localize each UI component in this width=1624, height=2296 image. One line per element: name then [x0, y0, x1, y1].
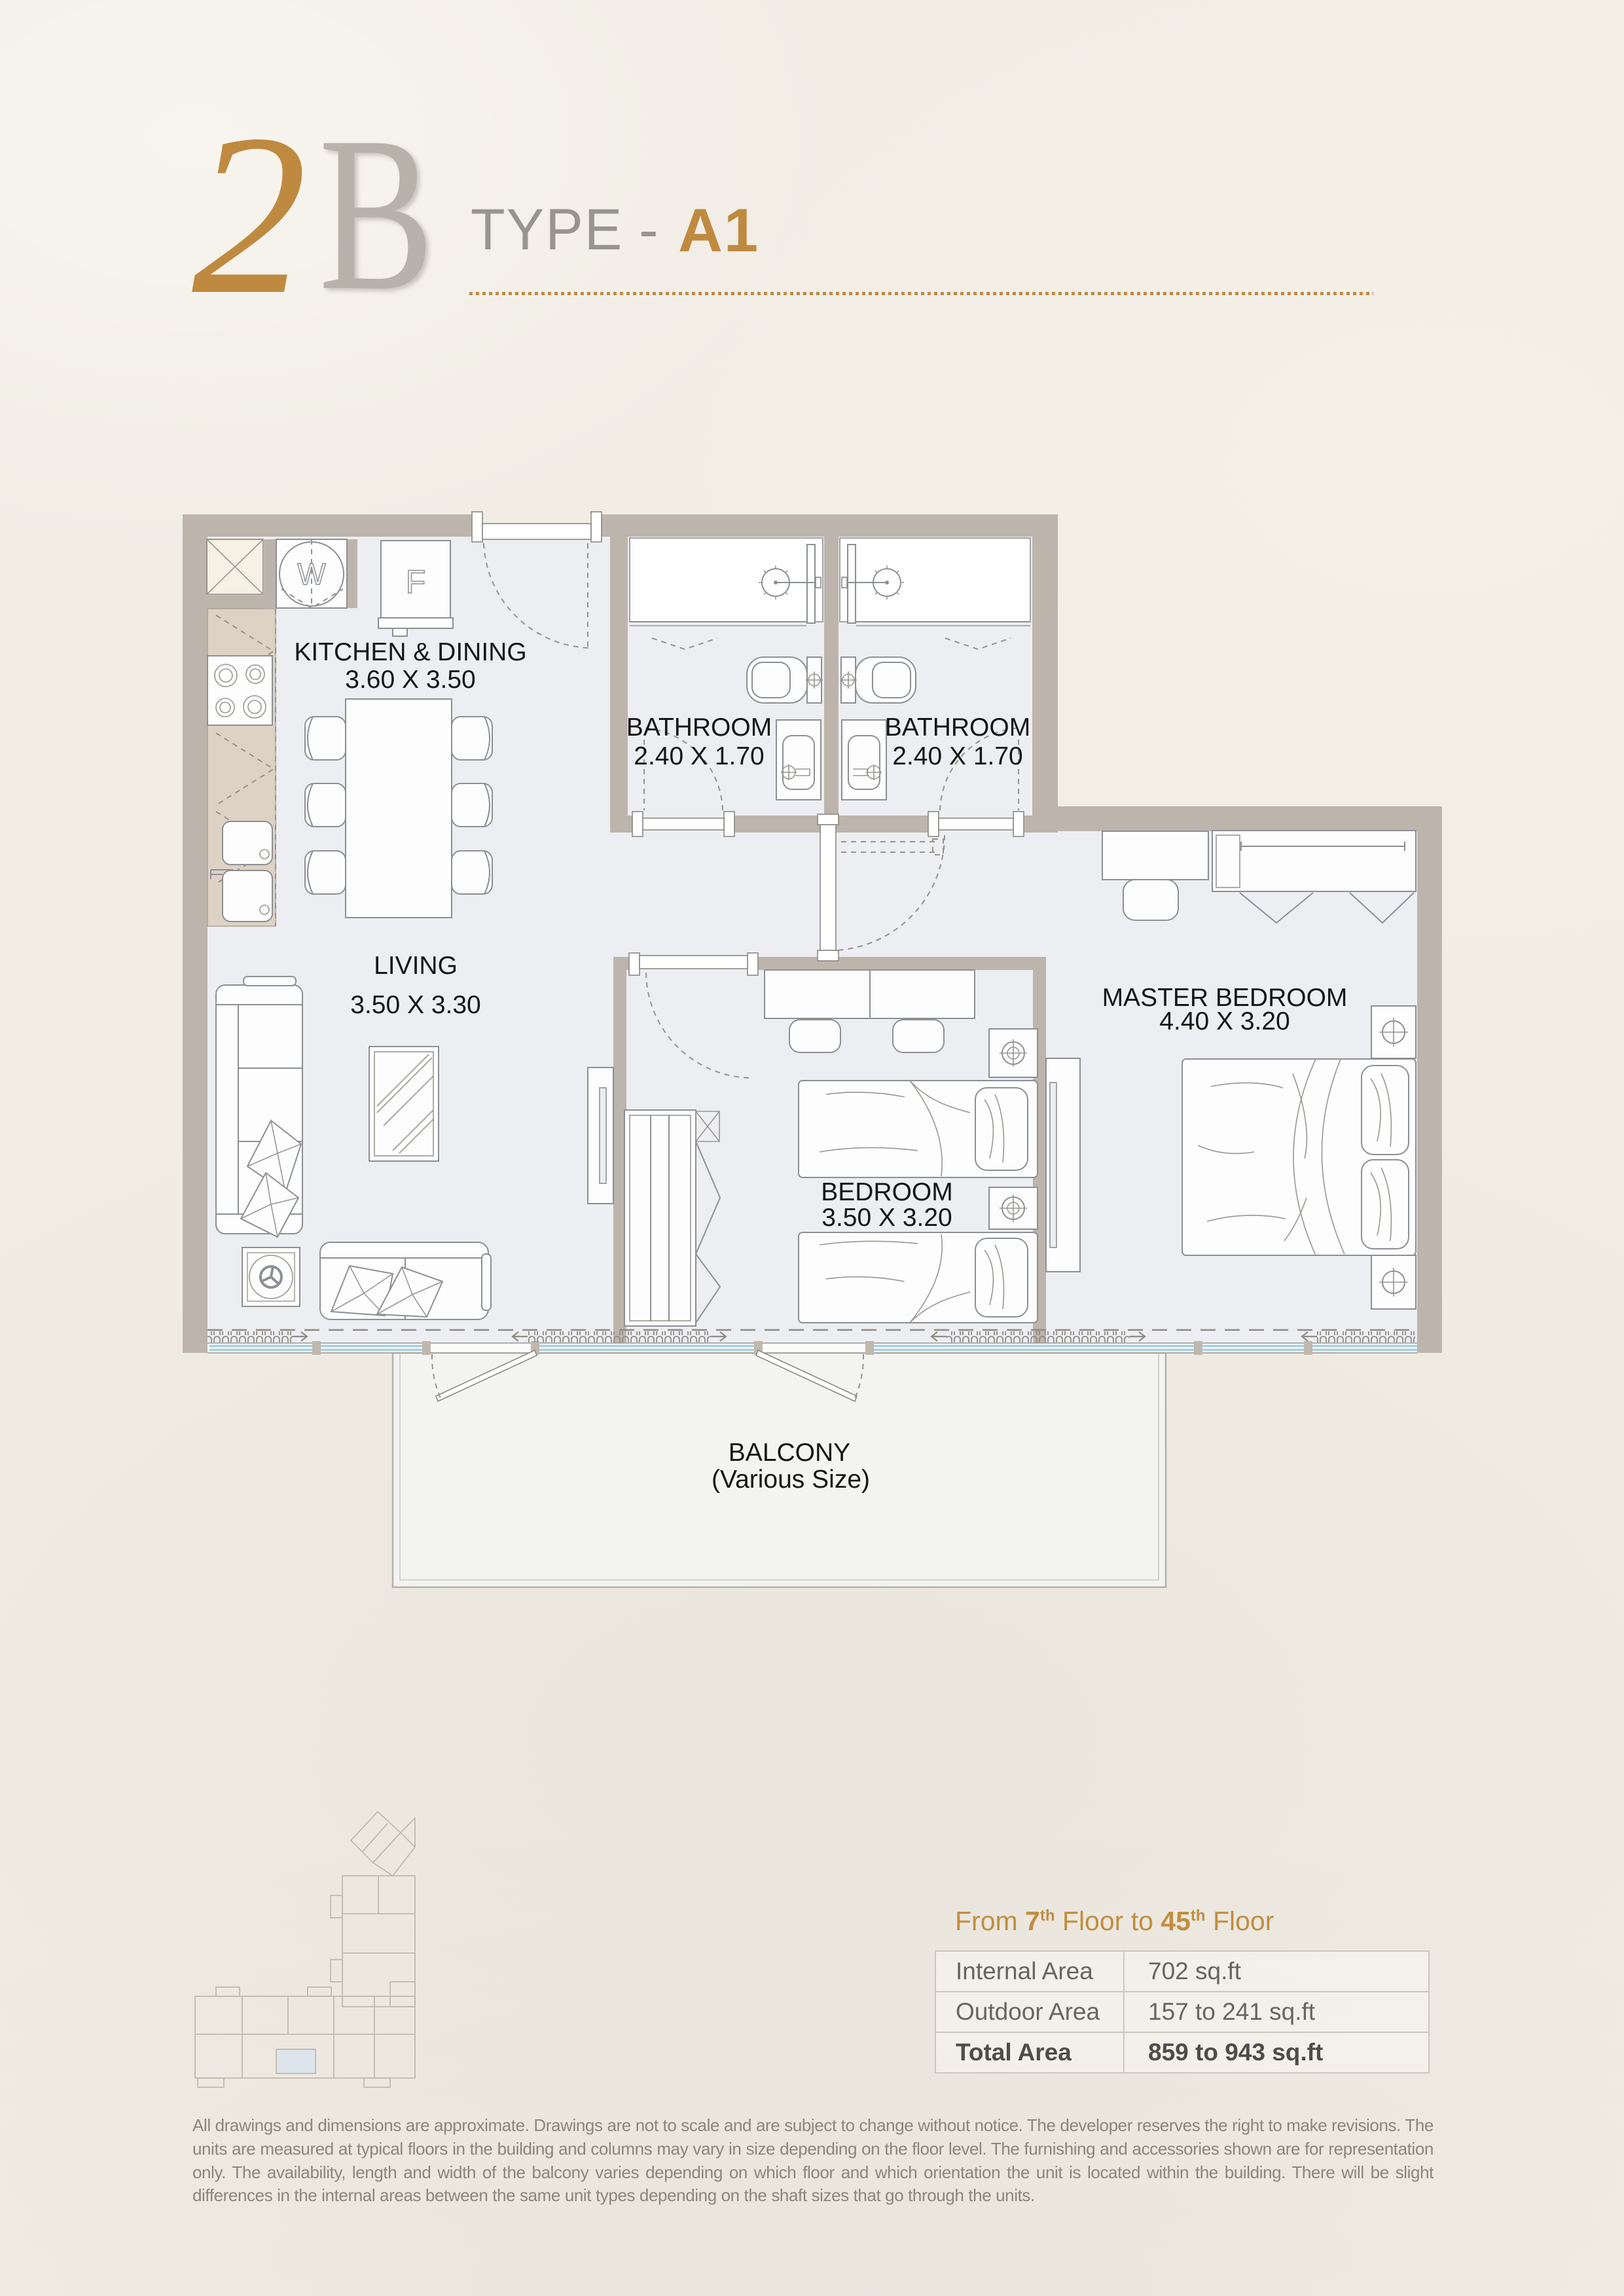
svg-text:F: F: [406, 564, 426, 600]
svg-text:BATHROOM: BATHROOM: [626, 713, 772, 742]
svg-text:LIVING: LIVING: [374, 952, 458, 980]
svg-text:3.60 X 3.50: 3.60 X 3.50: [345, 666, 476, 694]
svg-text:3.50 X 3.20: 3.50 X 3.20: [821, 1204, 952, 1232]
svg-text:4.40 X 3.20: 4.40 X 3.20: [1159, 1007, 1290, 1035]
svg-text:BEDROOM: BEDROOM: [821, 1178, 953, 1206]
svg-text:3.50 X 3.30: 3.50 X 3.30: [350, 991, 481, 1019]
svg-text:BATHROOM: BATHROOM: [885, 713, 1030, 742]
svg-text:(Various Size): (Various Size): [712, 1465, 870, 1494]
svg-text:2.40 X 1.70: 2.40 X 1.70: [634, 742, 765, 770]
svg-text:BALCONY: BALCONY: [729, 1439, 850, 1467]
svg-text:KITCHEN & DINING: KITCHEN & DINING: [294, 638, 526, 666]
svg-text:2.40 X 1.70: 2.40 X 1.70: [892, 742, 1023, 770]
